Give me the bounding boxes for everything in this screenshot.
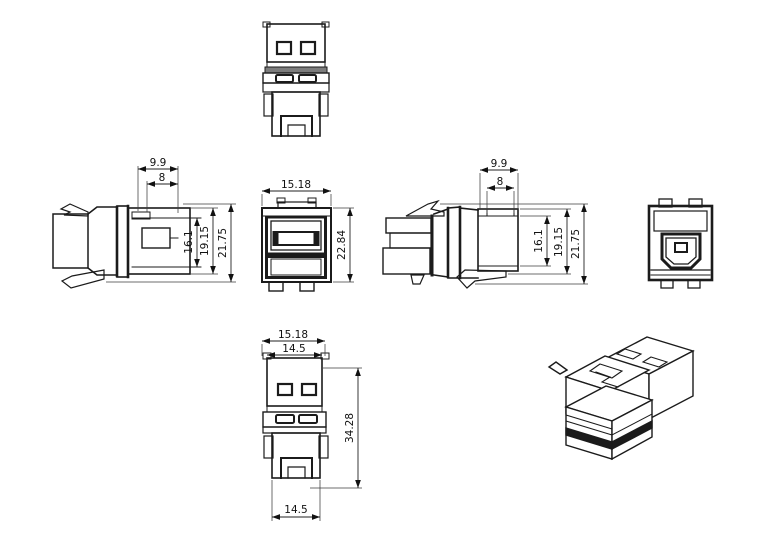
dim-label-right-21-75: 21.75 bbox=[570, 229, 582, 259]
dim-label-right-16-1: 16.1 bbox=[533, 229, 545, 252]
view-side-right bbox=[383, 201, 518, 288]
dimensions-side-right: 9.9 8 16.1 19.15 21.75 bbox=[440, 158, 588, 284]
dim-label-plan-34-28: 34.28 bbox=[344, 413, 356, 443]
latch-wing bbox=[549, 362, 567, 374]
dim-label-front-15-18: 15.18 bbox=[281, 179, 311, 191]
dim-label-left-21-75: 21.75 bbox=[217, 228, 229, 258]
dim-label-front-22-84: 22.84 bbox=[336, 230, 348, 260]
dim-label-left-9-9: 9.9 bbox=[150, 157, 167, 169]
view-side-left bbox=[53, 204, 201, 288]
dim-label-plan-14-5-bottom: 14.5 bbox=[284, 504, 307, 516]
view-isometric bbox=[549, 337, 693, 459]
view-plan-top bbox=[263, 22, 329, 136]
dim-label-left-19-15: 19.15 bbox=[199, 226, 211, 256]
dimensions-side-left: 9.9 8 16.1 19.15 21.75 bbox=[106, 157, 236, 282]
latch-wing-bottom bbox=[62, 270, 104, 288]
drawing-svg: 9.9 8 16.1 19.15 21.75 15.18 bbox=[0, 0, 757, 549]
view-front bbox=[262, 198, 331, 291]
dim-label-left-8: 8 bbox=[159, 172, 166, 184]
metal-shell-band bbox=[265, 67, 327, 73]
dim-label-right-8: 8 bbox=[497, 176, 504, 188]
view-rear-usb-b bbox=[649, 199, 712, 288]
latch-wing-top bbox=[406, 201, 444, 216]
dim-label-left-16-1: 16.1 bbox=[183, 230, 195, 253]
rear-foot-tab bbox=[411, 275, 424, 284]
dim-label-right-19-15: 19.15 bbox=[553, 227, 565, 257]
dim-label-right-9-9: 9.9 bbox=[491, 158, 508, 170]
usb-a-tongue bbox=[274, 232, 319, 245]
latch-wing-bottom bbox=[457, 270, 506, 288]
view-plan-bottom bbox=[263, 353, 329, 478]
dim-label-plan-15-18: 15.18 bbox=[278, 329, 308, 341]
dimensions-front: 15.18 22.84 bbox=[262, 179, 354, 282]
drawing-canvas: 9.9 8 16.1 19.15 21.75 15.18 bbox=[0, 0, 757, 549]
dim-label-plan-14-5-top: 14.5 bbox=[282, 343, 305, 355]
